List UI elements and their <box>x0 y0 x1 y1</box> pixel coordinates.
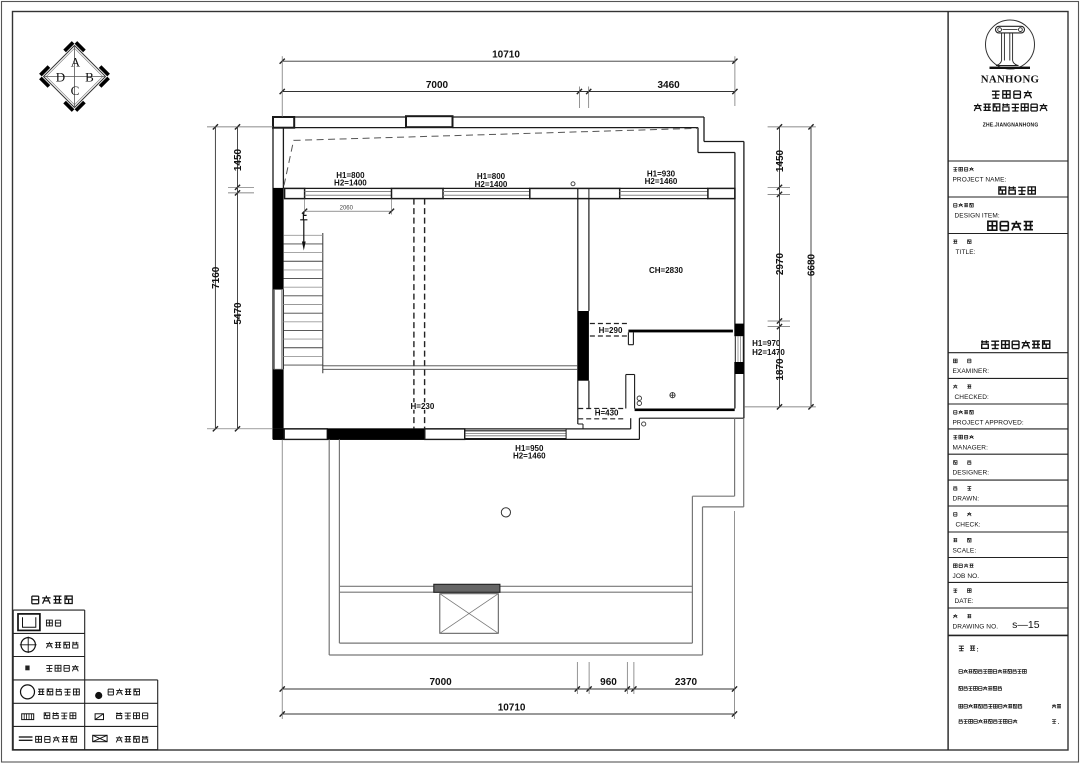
svg-text:TITLE:: TITLE: <box>956 249 976 256</box>
svg-text:DATE:: DATE: <box>955 598 974 605</box>
svg-text:2370: 2370 <box>675 677 698 688</box>
svg-text:MANAGER:: MANAGER: <box>953 444 989 451</box>
svg-text:H=230: H=230 <box>411 402 435 411</box>
svg-text:1450: 1450 <box>775 149 786 172</box>
svg-text:A: A <box>71 55 81 70</box>
svg-text:PROJECT APPROVED:: PROJECT APPROVED: <box>953 420 1024 427</box>
svg-text:B: B <box>85 70 94 85</box>
svg-text:CHECK:: CHECK: <box>956 522 981 529</box>
svg-text:C: C <box>71 83 80 98</box>
svg-text:3460: 3460 <box>657 80 680 91</box>
svg-text:H2=1460: H2=1460 <box>645 177 678 186</box>
svg-text:H=290: H=290 <box>599 326 623 335</box>
svg-text:H2=1400: H2=1400 <box>475 180 508 189</box>
svg-text:CHECKED:: CHECKED: <box>955 394 989 401</box>
svg-text:H1=970: H1=970 <box>752 339 781 348</box>
svg-text:1450: 1450 <box>233 148 244 171</box>
svg-text:5470: 5470 <box>233 302 244 325</box>
svg-text:DRAWN:: DRAWN: <box>953 496 980 503</box>
svg-text:SCALE:: SCALE: <box>953 548 977 555</box>
svg-text:10710: 10710 <box>498 703 526 714</box>
svg-text:DESIGN ITEM:: DESIGN ITEM: <box>955 213 1000 220</box>
svg-text:1870: 1870 <box>775 358 786 381</box>
svg-text:H=430: H=430 <box>595 409 619 418</box>
svg-text:JOB NO.: JOB NO. <box>953 573 980 580</box>
svg-text:960: 960 <box>600 677 617 688</box>
svg-text:H2=1400: H2=1400 <box>334 179 367 188</box>
svg-text:2060: 2060 <box>340 205 354 211</box>
svg-text:7160: 7160 <box>211 266 222 289</box>
svg-text:EXAMINER:: EXAMINER: <box>953 368 990 375</box>
svg-text:10710: 10710 <box>492 50 520 61</box>
svg-text:s—15: s—15 <box>1012 619 1040 631</box>
svg-text:7000: 7000 <box>429 677 452 688</box>
svg-text:DRAWING NO.: DRAWING NO. <box>953 624 999 631</box>
svg-text:7000: 7000 <box>426 80 449 91</box>
svg-text:H2=1460: H2=1460 <box>513 452 546 461</box>
svg-text:PROJECT NAME:: PROJECT NAME: <box>953 177 1007 184</box>
svg-text:D: D <box>56 70 65 85</box>
svg-text:CH=2830: CH=2830 <box>649 266 684 275</box>
svg-text::: : <box>977 646 979 653</box>
svg-text:DESIGNER:: DESIGNER: <box>953 470 990 477</box>
svg-text:2970: 2970 <box>775 252 786 275</box>
svg-text:ZHE.JIANGNANHONG: ZHE.JIANGNANHONG <box>983 123 1039 129</box>
svg-text:H2=1470: H2=1470 <box>752 348 785 357</box>
svg-text:NANHONG: NANHONG <box>981 74 1040 86</box>
svg-text:6680: 6680 <box>807 253 818 276</box>
